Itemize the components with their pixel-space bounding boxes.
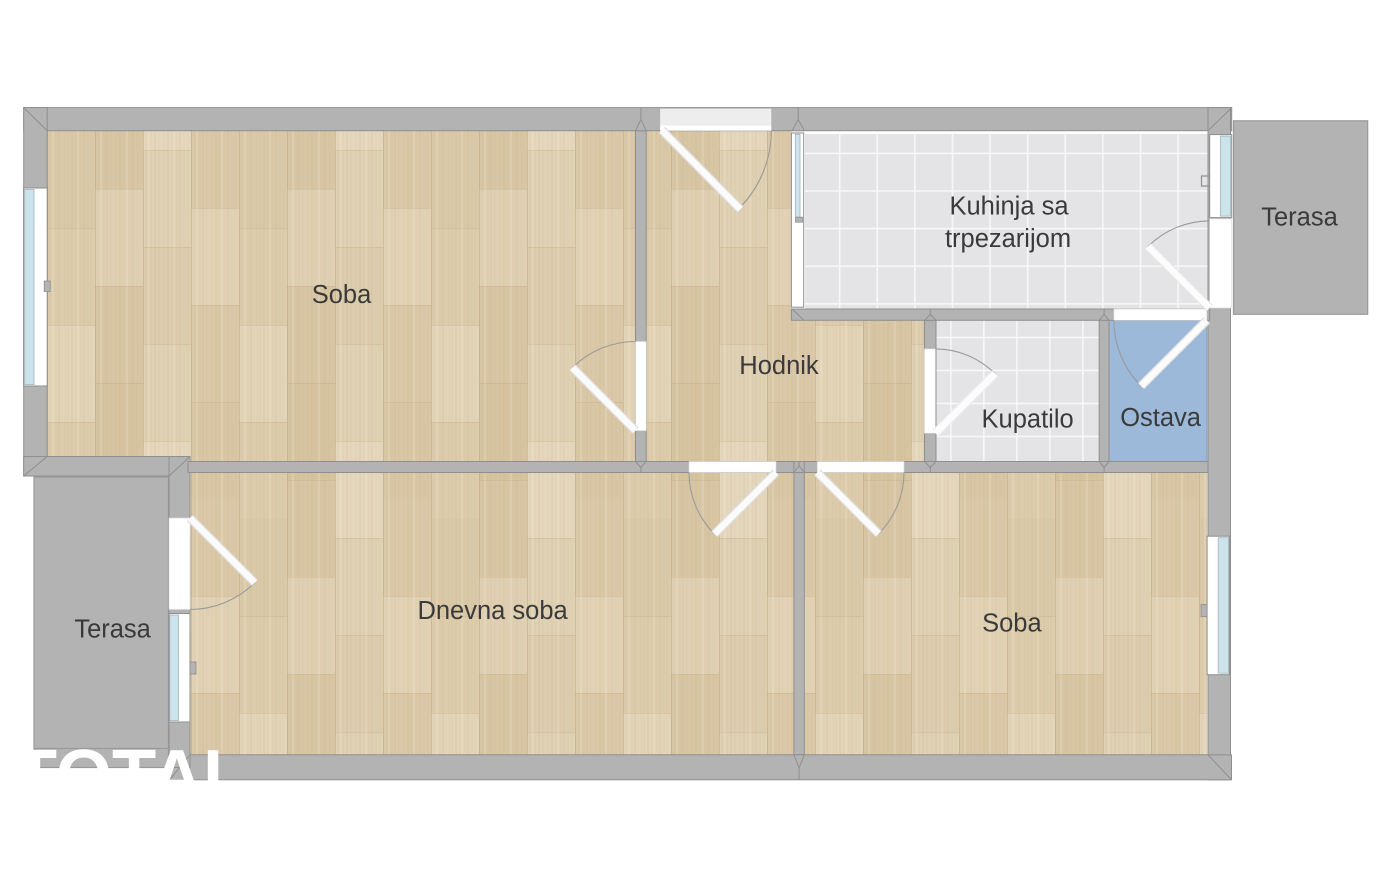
svg-text:Kuhinja sa: Kuhinja sa: [949, 193, 1069, 221]
svg-text:Soba: Soba: [312, 281, 372, 309]
svg-text:Dnevna soba: Dnevna soba: [417, 597, 568, 625]
svg-text:Kupatilo: Kupatilo: [982, 406, 1074, 434]
svg-text:Hodnik: Hodnik: [739, 352, 819, 380]
svg-text:trpezarijom: trpezarijom: [945, 225, 1071, 253]
svg-text:Soba: Soba: [982, 610, 1042, 638]
svg-text:Terasa: Terasa: [74, 616, 151, 644]
svg-text:Ostava: Ostava: [1120, 404, 1202, 432]
svg-text:Terasa: Terasa: [1261, 204, 1338, 232]
svg-text:TOTAL: TOTAL: [13, 736, 247, 816]
